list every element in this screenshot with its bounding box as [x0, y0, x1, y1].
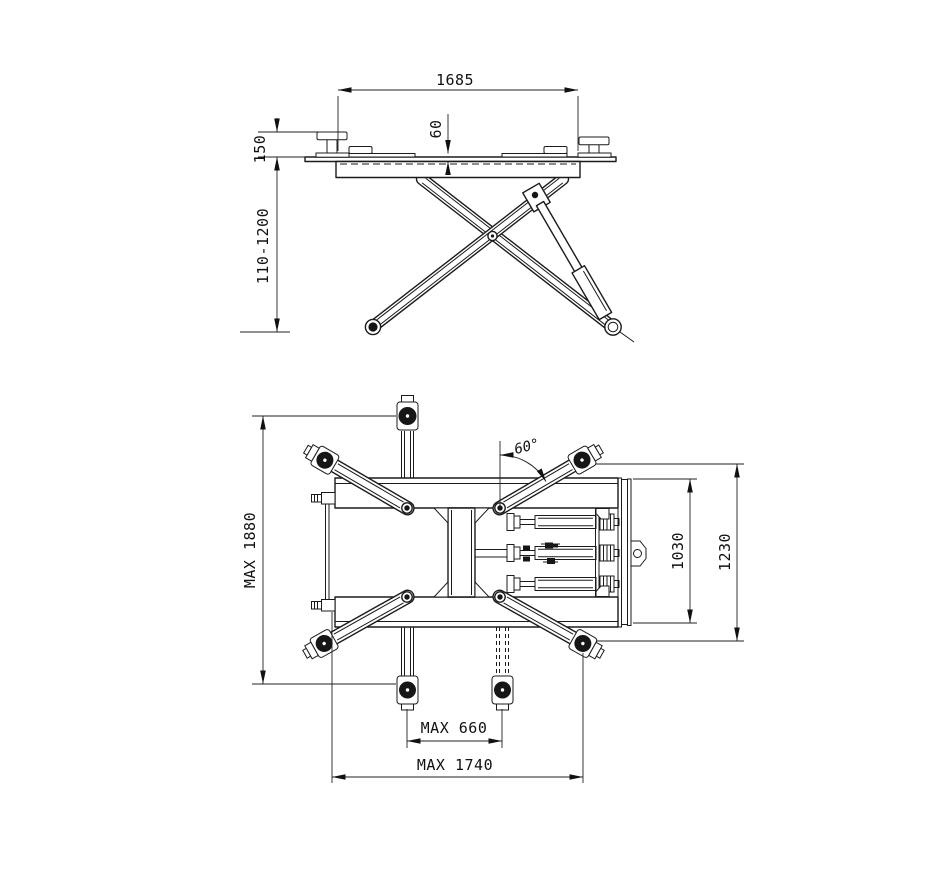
right-foot-skid [620, 332, 634, 342]
dim-label-110-1200: 110-1200 [254, 208, 272, 284]
left-bottom-pin-bracket [312, 600, 336, 612]
dim-overall-width: 1685 [338, 71, 578, 151]
right-bottom-gusset [596, 586, 609, 597]
cylinder-middle [507, 543, 619, 565]
plan-view: 60° MAX 1880 1030 1230 MAX 660 [241, 396, 744, 784]
mounting-hole [634, 550, 642, 558]
technical-drawing-scissor-lift: 1685 60 150 110-1200 [0, 0, 939, 872]
dim-label-1685: 1685 [436, 71, 474, 89]
dim-label-150: 150 [251, 135, 269, 164]
right-top-gusset [596, 509, 609, 520]
dim-lift-range: 110-1200 [240, 157, 290, 332]
left-foot-pin [368, 322, 377, 331]
dim-label-1230: 1230 [716, 533, 734, 571]
right-end-plate [618, 478, 646, 627]
center-pivot-pin [491, 234, 494, 237]
dim-label-max-1880: MAX 1880 [241, 512, 259, 588]
pad-tab [402, 396, 414, 403]
drawing-canvas: 1685 60 150 110-1200 [0, 0, 939, 872]
left-support-pad [316, 132, 349, 157]
right-ramp-pad [502, 147, 567, 158]
dim-min-arm-span: MAX 660 [407, 709, 502, 748]
dim-label-max-1740: MAX 1740 [417, 756, 493, 774]
right-support-pad [578, 137, 611, 157]
center-column [434, 508, 489, 597]
dim-label-60: 60 [427, 119, 445, 138]
dim-max-arm-span: MAX 1740 [332, 612, 583, 783]
side-elevation-view: 1685 60 150 110-1200 [240, 71, 634, 342]
scissor-arm-a [414, 171, 617, 332]
pad-tab [402, 704, 414, 710]
arm-bottom-right-vertical [492, 627, 513, 710]
dim-label-60deg: 60° [513, 436, 542, 458]
arm-top-vertical [397, 396, 418, 479]
pad-tab [497, 704, 509, 710]
left-top-pin-bracket [312, 493, 336, 505]
arm-bottom-left-vertical [397, 627, 418, 710]
dim-label-max-660: MAX 660 [421, 719, 488, 737]
left-ramp-pad [348, 147, 415, 158]
right-foot-roller-hub [608, 322, 618, 332]
dim-label-1030: 1030 [669, 532, 687, 570]
